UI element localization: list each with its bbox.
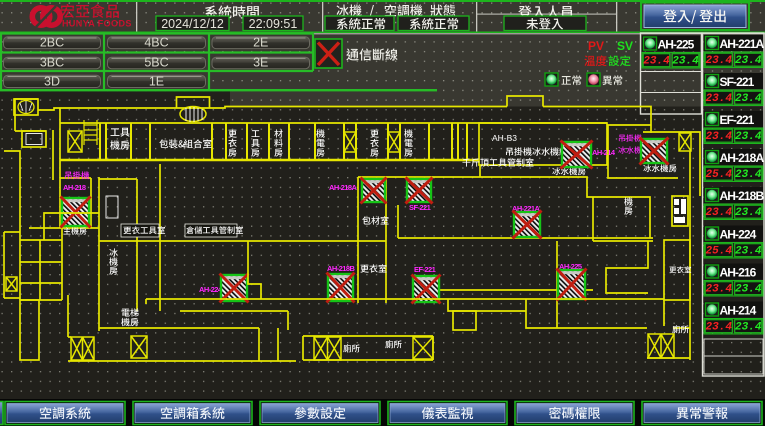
svg-text:23.4: 23.4 (706, 207, 733, 219)
svg-text:AH-216: AH-216 (720, 266, 757, 280)
svg-text:25.4: 25.4 (706, 246, 733, 258)
svg-text:AH-218: AH-218 (63, 183, 86, 192)
svg-text:23.4: 23.4 (735, 131, 762, 143)
svg-text:23.4: 23.4 (735, 55, 762, 67)
svg-text:SF-221: SF-221 (409, 203, 431, 212)
svg-text:AH-214: AH-214 (592, 148, 616, 157)
svg-text:AH-221A: AH-221A (720, 37, 765, 51)
svg-text:EF-221: EF-221 (414, 265, 436, 274)
svg-text:22:09:51: 22:09:51 (249, 17, 298, 31)
svg-text:AH-224: AH-224 (720, 228, 757, 242)
svg-text:23.4: 23.4 (735, 207, 762, 219)
svg-text:2BC: 2BC (40, 35, 64, 49)
svg-text:AH-B3: AH-B3 (492, 133, 517, 143)
svg-text:AH-224: AH-224 (199, 285, 223, 294)
svg-text:SF-221: SF-221 (720, 75, 755, 89)
svg-text:SV: SV (617, 39, 633, 53)
svg-text:AH-218B: AH-218B (720, 189, 765, 203)
svg-text:PV: PV (588, 39, 604, 53)
svg-text:3BC: 3BC (40, 56, 64, 70)
svg-text:25.4: 25.4 (706, 169, 733, 181)
svg-text:23.4: 23.4 (643, 56, 670, 68)
svg-text:23.4: 23.4 (706, 131, 733, 143)
svg-text:23.4: 23.4 (706, 284, 733, 296)
svg-text:2024/12/12: 2024/12/12 (161, 17, 224, 31)
svg-text:23.4: 23.4 (735, 246, 762, 258)
svg-text:HUNYA FOODS: HUNYA FOODS (62, 19, 132, 29)
svg-text:23.4: 23.4 (672, 56, 699, 68)
svg-text:AH-218B: AH-218B (327, 264, 356, 273)
svg-text:3E: 3E (253, 56, 268, 70)
svg-text:23.4: 23.4 (735, 284, 762, 296)
svg-text:2E: 2E (253, 35, 268, 49)
svg-text:23.4: 23.4 (706, 93, 733, 105)
svg-text:23.4: 23.4 (706, 55, 733, 67)
svg-text:AH-218A: AH-218A (329, 183, 358, 192)
svg-text:AH-214: AH-214 (720, 304, 757, 318)
svg-text:23.4: 23.4 (735, 93, 762, 105)
svg-text:23.4: 23.4 (735, 322, 762, 334)
svg-text:AH-218A: AH-218A (720, 151, 765, 165)
svg-text:3D: 3D (44, 74, 60, 88)
svg-text:EF-221: EF-221 (720, 113, 755, 127)
svg-text:5BC: 5BC (144, 56, 168, 70)
svg-text:1E: 1E (149, 74, 164, 88)
svg-text:AH-225: AH-225 (658, 38, 695, 52)
svg-text:23.4: 23.4 (735, 169, 762, 181)
svg-text:4BC: 4BC (144, 35, 168, 49)
svg-text:23.4: 23.4 (706, 322, 733, 334)
